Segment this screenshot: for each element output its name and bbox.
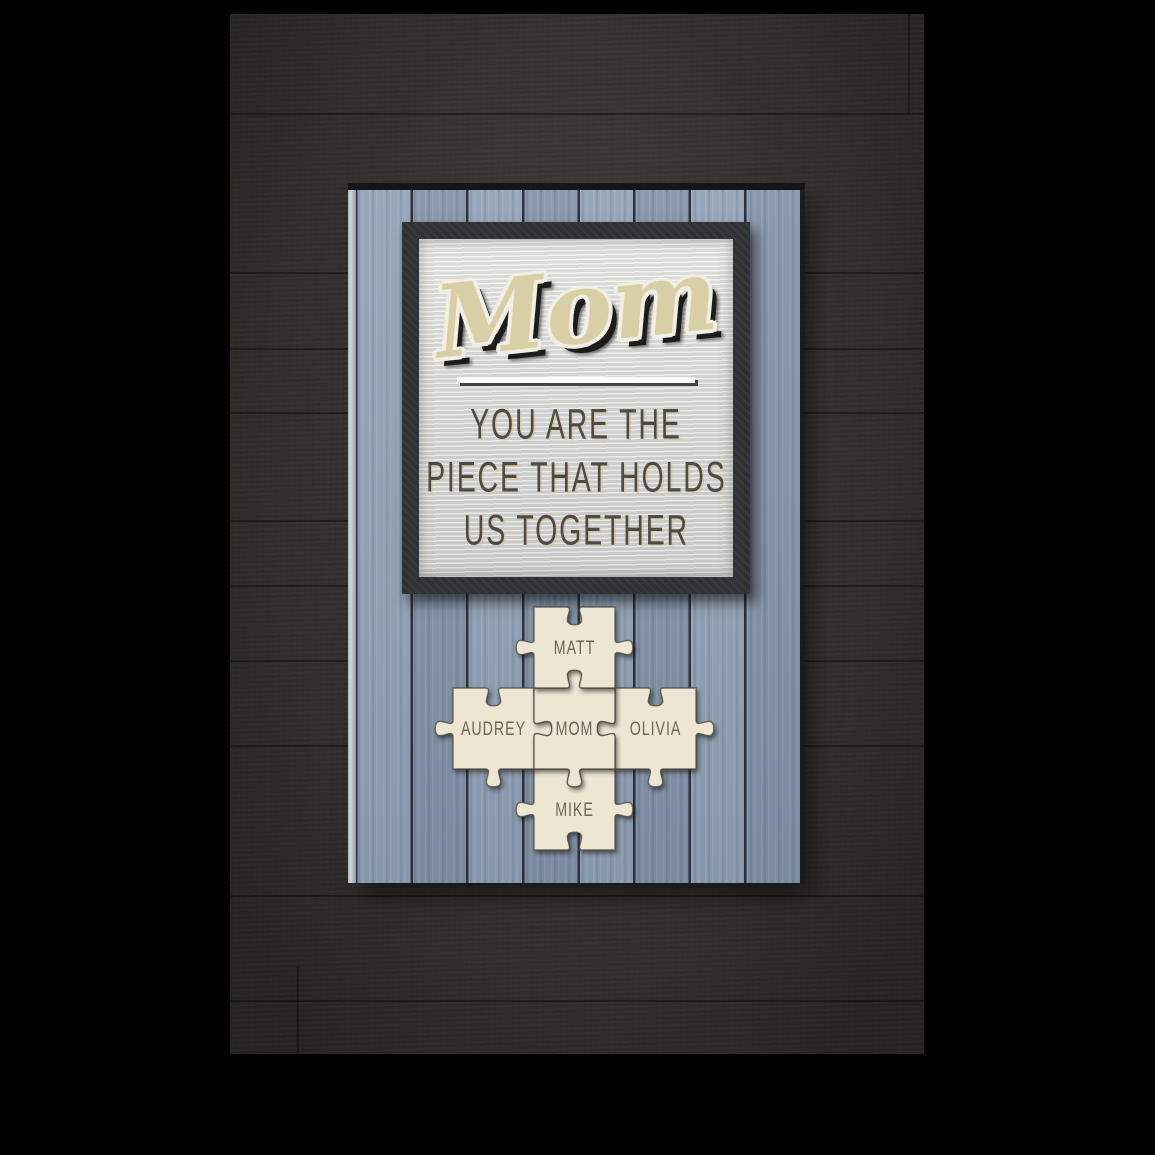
puzzle-piece-name-audrey: AUDREY bbox=[461, 718, 526, 740]
puzzle-piece-name-mom: MOM bbox=[556, 718, 594, 740]
puzzle-piece-name-mike: MIKE bbox=[555, 799, 594, 821]
subtitle-line-3: US TOGETHER bbox=[463, 506, 688, 556]
charcoal-frame: Mom YOU ARE THE PIECE THAT HOLDS US TOGE… bbox=[402, 222, 750, 594]
plank-seam bbox=[230, 895, 924, 897]
subtitle-line-2: PIECE THAT HOLDS bbox=[426, 453, 726, 503]
sign-right-edge bbox=[800, 190, 805, 883]
blue-plank-sign: Mom YOU ARE THE PIECE THAT HOLDS US TOGE… bbox=[355, 190, 800, 883]
sign-top-edge bbox=[348, 183, 805, 190]
title-script: Mom bbox=[428, 239, 724, 389]
family-puzzle: MIKEAUDREYOLIVIAMOMMATT bbox=[425, 597, 725, 867]
puzzle-piece-name-matt: MATT bbox=[554, 637, 595, 659]
plank-seam bbox=[230, 1000, 924, 1002]
plank-seam bbox=[230, 113, 924, 115]
puzzle-piece-name-olivia: OLIVIA bbox=[630, 718, 682, 740]
plank-seam bbox=[297, 967, 299, 1054]
subtitle-line-1: YOU ARE THE bbox=[470, 400, 681, 450]
plank-seam bbox=[908, 14, 910, 113]
wall-canvas: Mom YOU ARE THE PIECE THAT HOLDS US TOGE… bbox=[230, 14, 924, 1054]
whitewashed-panel: Mom YOU ARE THE PIECE THAT HOLDS US TOGE… bbox=[419, 239, 733, 577]
sign-left-highlight bbox=[348, 190, 356, 883]
